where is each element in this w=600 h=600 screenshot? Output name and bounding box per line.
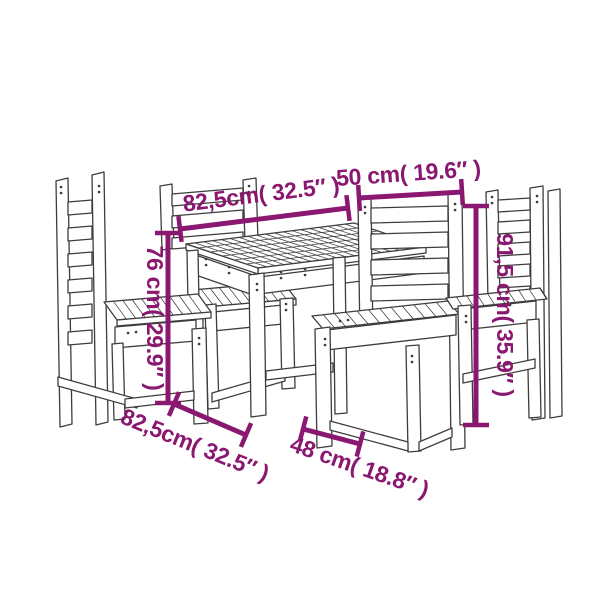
stretcher	[419, 428, 452, 451]
product-dimension-diagram: 82,5cm( 32.5″ ) 50 cm( 19.6″ ) 76 cm( 29…	[0, 0, 600, 600]
dimension-label-chair-height: 91,5 cm( 35.9″ )	[492, 233, 518, 396]
dining-set-diagram-canvas: 82,5cm( 32.5″ ) 50 cm( 19.6″ ) 76 cm( 29…	[0, 0, 600, 600]
dimension-label-table-height: 76 cm( 29.9″ )	[142, 246, 168, 391]
chair-leg	[112, 343, 125, 420]
backrest-slat	[68, 304, 92, 319]
chair-leg	[406, 345, 421, 452]
backrest-slat	[68, 252, 92, 267]
table-leg	[249, 273, 266, 417]
backrest-slat	[371, 232, 448, 249]
backrest-slat	[68, 330, 92, 345]
backrest-slat	[371, 258, 448, 275]
backrest-slat	[371, 206, 448, 223]
backrest-slat	[498, 220, 530, 234]
backrest-slat	[68, 278, 92, 293]
chair-leg	[192, 328, 208, 424]
backrest-slat	[68, 200, 92, 215]
chair-leg	[548, 189, 562, 418]
backrest-slat	[498, 198, 530, 212]
backrest-slat	[371, 284, 448, 301]
backrest-slat	[68, 226, 92, 241]
